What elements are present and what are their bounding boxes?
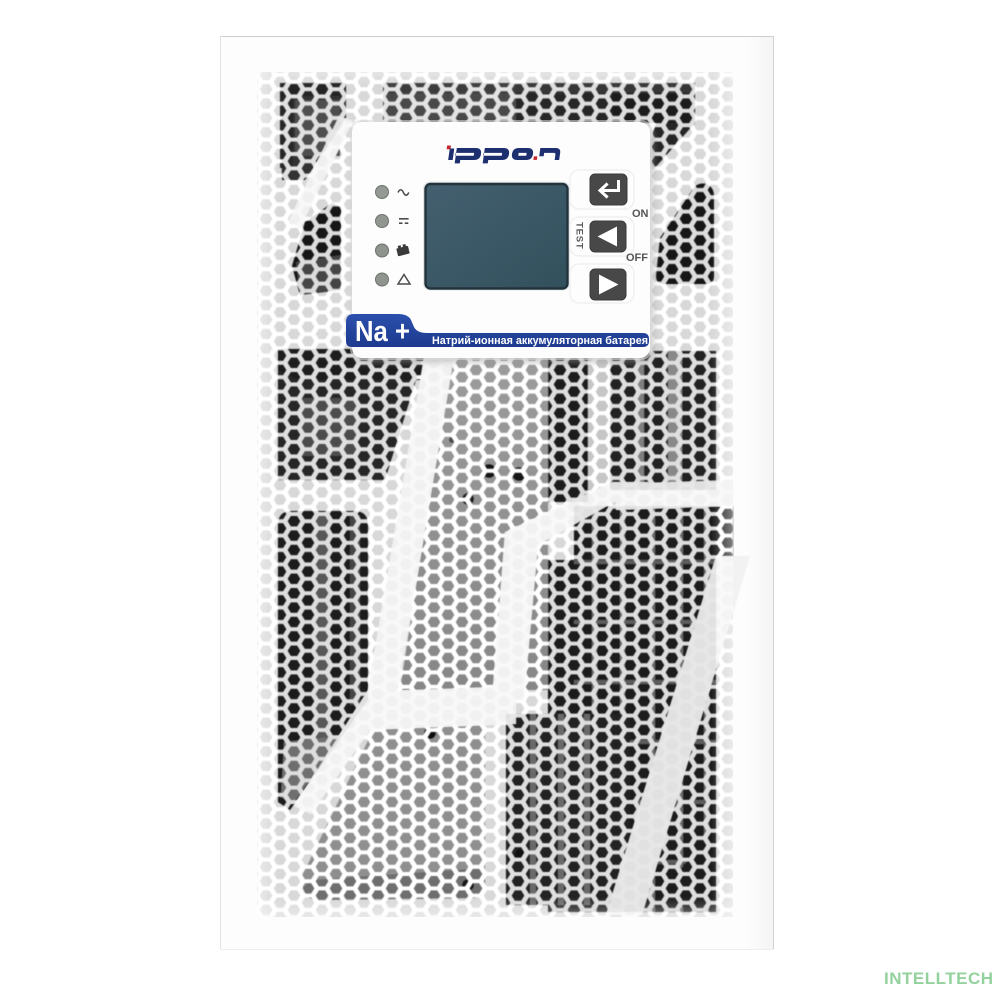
svg-text:INTELLTECH: INTELLTECH [884, 969, 994, 988]
svg-text:Na +: Na + [355, 316, 410, 348]
svg-text:ON: ON [632, 208, 649, 220]
svg-text:Натрий-ионная аккумуляторная б: Натрий-ионная аккумуляторная батарея [432, 335, 648, 347]
svg-text:OFF: OFF [626, 252, 648, 264]
svg-text:TEST: TEST [574, 222, 585, 249]
